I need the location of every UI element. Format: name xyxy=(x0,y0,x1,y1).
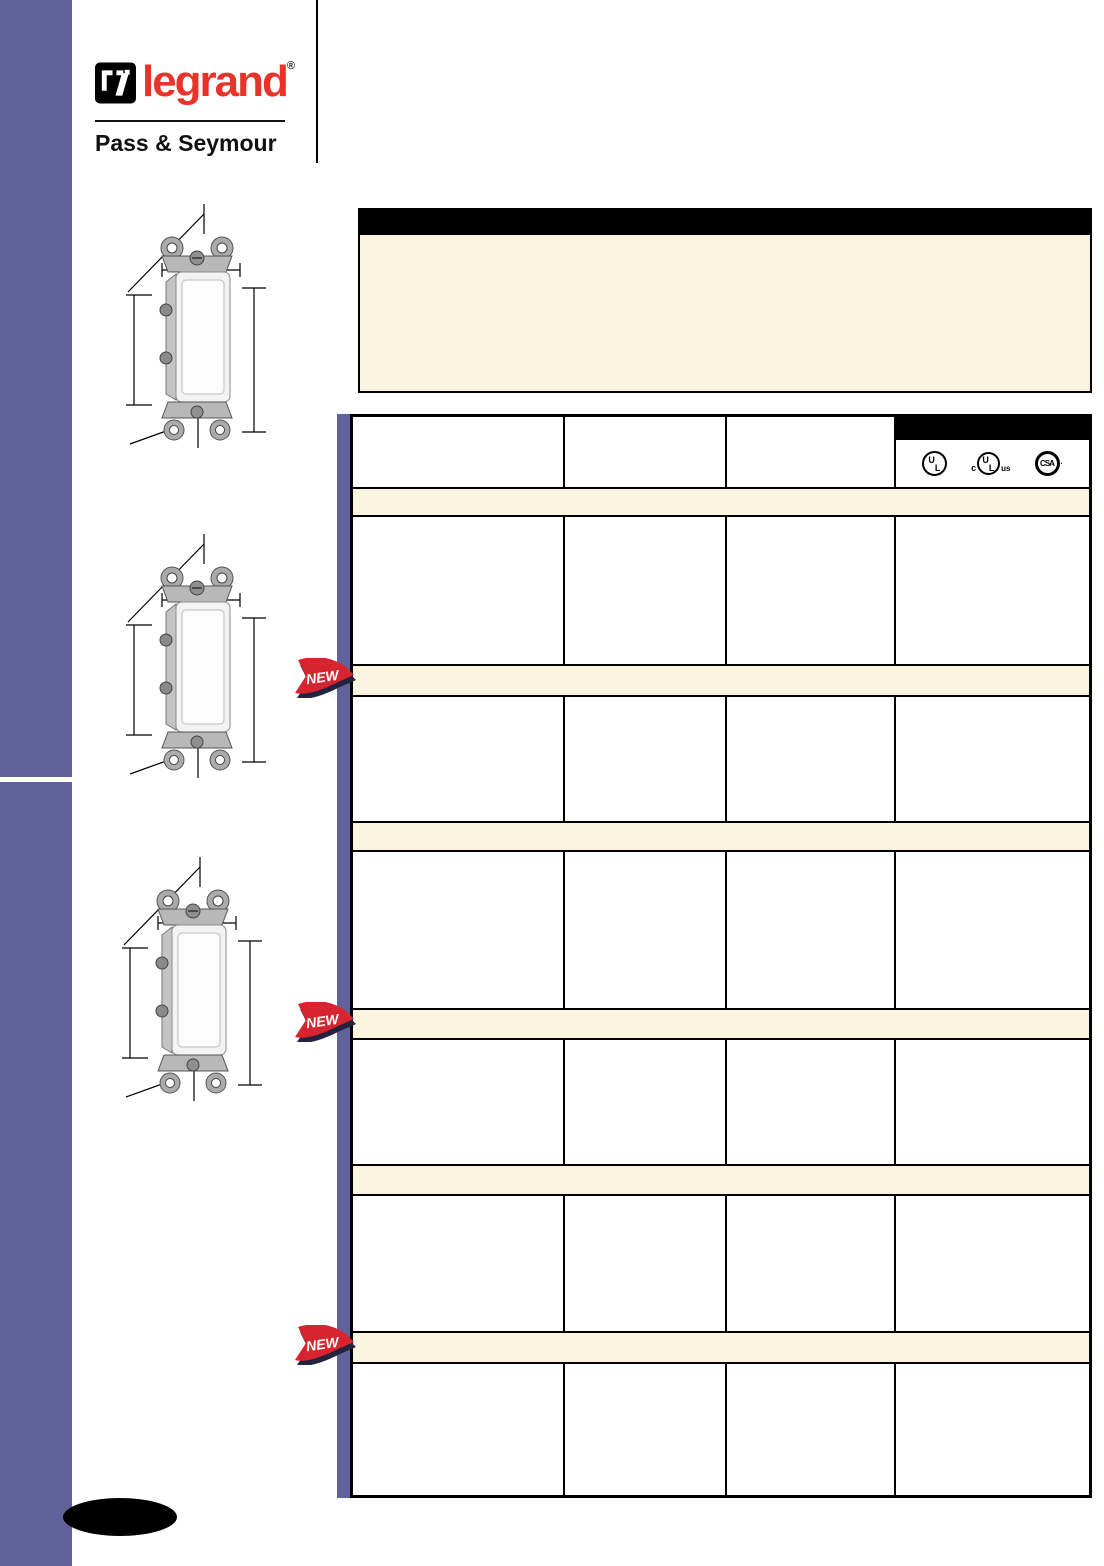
subbrand-name: Pass & Seymour xyxy=(95,130,295,157)
table-cell xyxy=(896,1364,1089,1495)
header-cell-certifications: UL c UL us CSA · xyxy=(896,417,1089,487)
table-cell xyxy=(727,852,894,1008)
section-header-bar-2 xyxy=(353,666,1089,695)
table-cell xyxy=(896,1040,1089,1164)
cul-us-listed-icon: c UL us xyxy=(971,452,1010,475)
table-cell xyxy=(353,1196,563,1331)
table-cell xyxy=(353,697,563,821)
switch-illustration-1 xyxy=(122,200,272,450)
new-badge-1: NEW xyxy=(292,658,356,698)
logo-divider xyxy=(95,120,285,122)
table-cell xyxy=(896,517,1089,664)
table-cell xyxy=(353,1040,563,1164)
section-header-bar-3 xyxy=(353,823,1089,850)
table-cell xyxy=(896,697,1089,821)
header-cell-3 xyxy=(727,417,894,487)
table-header-row: UL c UL us CSA · xyxy=(353,417,1089,487)
page-number-tab xyxy=(63,1498,177,1536)
table-cell xyxy=(727,1364,894,1495)
table-cell xyxy=(727,1196,894,1331)
table-cell xyxy=(727,697,894,821)
new-badge-3: NEW xyxy=(292,1325,356,1365)
switch-illustration-2 xyxy=(122,530,272,780)
table-row-5 xyxy=(353,1196,1089,1331)
table-cell xyxy=(565,1364,725,1495)
table-row-2 xyxy=(353,697,1089,821)
table-cell xyxy=(565,852,725,1008)
ul-listed-icon: UL xyxy=(922,451,947,476)
registered-mark: ® xyxy=(287,60,295,72)
table-cell xyxy=(727,517,894,664)
product-description-box xyxy=(358,233,1092,393)
sidebar-band-top xyxy=(0,0,72,777)
table-cell xyxy=(727,1040,894,1164)
brand-name: legrand xyxy=(142,57,287,106)
table-cell xyxy=(896,1196,1089,1331)
sidebar-band-bottom xyxy=(0,782,72,1566)
section-header-bar-1 xyxy=(353,489,1089,515)
product-title-bar xyxy=(358,208,1092,233)
table-frame: UL c UL us CSA · xyxy=(350,414,1092,1498)
section-header-bar-4 xyxy=(353,1010,1089,1038)
table-cell xyxy=(565,1196,725,1331)
table-row-6 xyxy=(353,1364,1089,1495)
table-cell xyxy=(565,1040,725,1164)
catalog-page: legrand® Pass & Seymour xyxy=(0,0,1104,1566)
table-cell xyxy=(353,852,563,1008)
certification-icons: UL c UL us CSA · xyxy=(896,440,1089,487)
legrand-mark-icon xyxy=(95,62,136,104)
header-vertical-rule xyxy=(316,0,318,163)
table-cell xyxy=(896,852,1089,1008)
header-cell-1 xyxy=(353,417,563,487)
csa-certified-icon: CSA · xyxy=(1035,451,1063,476)
spec-table: UL c UL us CSA · xyxy=(337,414,1092,1498)
new-badge-2: NEW xyxy=(292,1002,356,1042)
switch-illustration-3 xyxy=(118,853,268,1103)
certifications-header-bar xyxy=(896,417,1089,440)
table-row-3 xyxy=(353,852,1089,1008)
brand-logo: legrand® Pass & Seymour xyxy=(95,60,295,157)
table-cell xyxy=(353,517,563,664)
table-cell xyxy=(565,697,725,821)
table-cell xyxy=(353,1364,563,1495)
section-header-bar-5 xyxy=(353,1166,1089,1194)
section-header-bar-6 xyxy=(353,1333,1089,1362)
header-cell-2 xyxy=(565,417,725,487)
table-row-1 xyxy=(353,517,1089,664)
table-row-4 xyxy=(353,1040,1089,1164)
table-cell xyxy=(565,517,725,664)
